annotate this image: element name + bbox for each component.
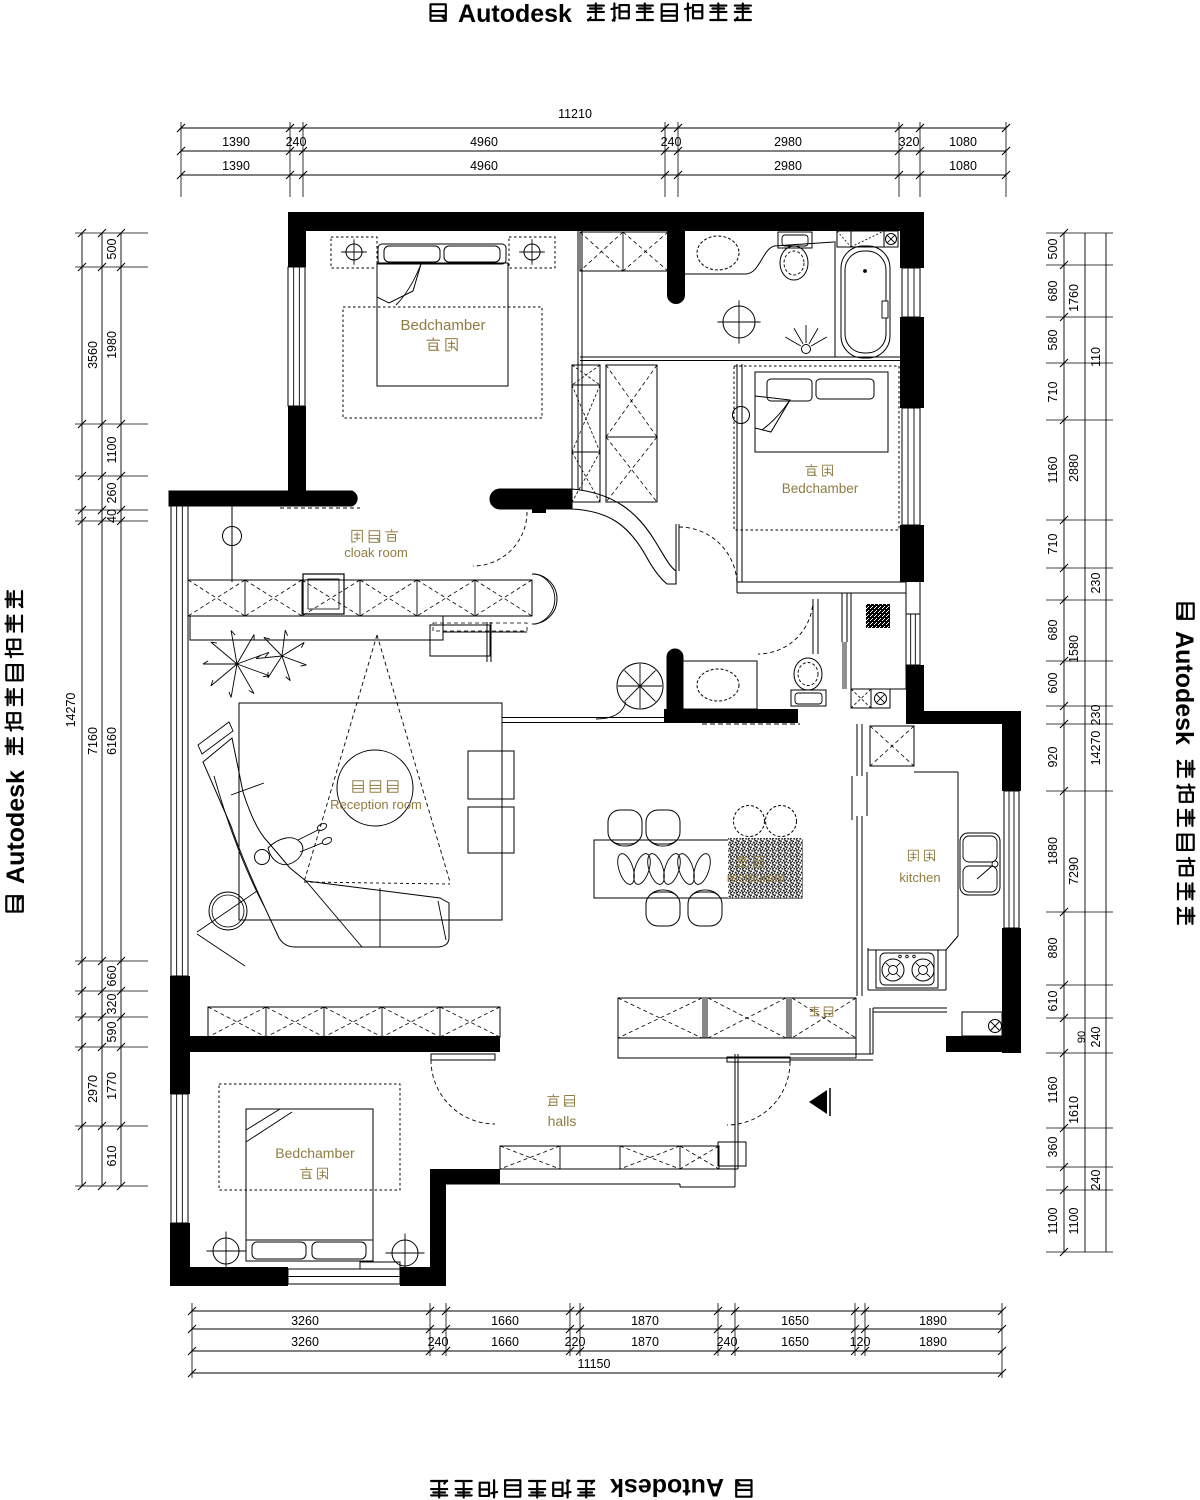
svg-text:3260: 3260 bbox=[291, 1314, 319, 1328]
svg-text:40: 40 bbox=[105, 509, 119, 523]
svg-text:Autodesk: Autodesk bbox=[1170, 631, 1198, 745]
svg-text:3560: 3560 bbox=[86, 341, 100, 369]
svg-text:1390: 1390 bbox=[222, 135, 250, 149]
svg-text:660: 660 bbox=[105, 966, 119, 987]
svg-text:2880: 2880 bbox=[1067, 454, 1081, 482]
svg-text:kitchen: kitchen bbox=[899, 870, 940, 885]
svg-text:1080: 1080 bbox=[949, 159, 977, 173]
svg-text:500: 500 bbox=[105, 239, 119, 260]
svg-text:240: 240 bbox=[1089, 1027, 1103, 1048]
svg-text:240: 240 bbox=[661, 135, 682, 149]
svg-text:7160: 7160 bbox=[86, 727, 100, 755]
svg-text:4960: 4960 bbox=[470, 159, 498, 173]
svg-text:1100: 1100 bbox=[1046, 1208, 1060, 1235]
svg-text:Autodesk: Autodesk bbox=[610, 1473, 724, 1500]
svg-text:1660: 1660 bbox=[491, 1335, 519, 1349]
svg-text:1870: 1870 bbox=[631, 1335, 659, 1349]
svg-text:500: 500 bbox=[1046, 239, 1060, 260]
svg-text:240: 240 bbox=[1089, 1170, 1103, 1191]
svg-text:halls: halls bbox=[548, 1113, 577, 1129]
svg-text:260: 260 bbox=[105, 483, 119, 504]
svg-text:Reception room: Reception room bbox=[330, 797, 422, 812]
svg-text:1100: 1100 bbox=[1067, 1208, 1081, 1235]
svg-text:230: 230 bbox=[1089, 705, 1103, 726]
svg-text:580: 580 bbox=[1046, 330, 1060, 351]
svg-text:220: 220 bbox=[565, 1335, 586, 1349]
svg-text:110: 110 bbox=[1089, 347, 1103, 367]
svg-text:14270: 14270 bbox=[1089, 731, 1103, 766]
svg-text:240: 240 bbox=[717, 1335, 738, 1349]
svg-text:1760: 1760 bbox=[1067, 284, 1081, 312]
svg-text:11150: 11150 bbox=[578, 1357, 611, 1371]
svg-text:680: 680 bbox=[1046, 620, 1060, 641]
svg-text:360: 360 bbox=[1046, 1137, 1060, 1158]
svg-text:1160: 1160 bbox=[1046, 457, 1060, 484]
svg-text:710: 710 bbox=[1046, 382, 1060, 403]
svg-text:3260: 3260 bbox=[291, 1335, 319, 1349]
svg-text:Autodesk: Autodesk bbox=[458, 0, 572, 28]
svg-text:cloak room: cloak room bbox=[344, 545, 408, 560]
svg-text:320: 320 bbox=[899, 135, 920, 149]
svg-text:6160: 6160 bbox=[105, 727, 119, 755]
svg-text:restaurant: restaurant bbox=[727, 870, 786, 885]
svg-text:1980: 1980 bbox=[105, 331, 119, 359]
svg-text:11210: 11210 bbox=[558, 107, 592, 121]
svg-text:1100: 1100 bbox=[105, 437, 119, 464]
svg-text:1650: 1650 bbox=[781, 1314, 809, 1328]
svg-text:Bedchamber: Bedchamber bbox=[275, 1145, 355, 1161]
svg-text:90: 90 bbox=[1076, 1031, 1088, 1043]
svg-text:1770: 1770 bbox=[105, 1072, 119, 1100]
svg-text:120: 120 bbox=[850, 1335, 871, 1349]
svg-text:240: 240 bbox=[286, 135, 307, 149]
svg-text:600: 600 bbox=[1046, 673, 1060, 694]
svg-text:1580: 1580 bbox=[1067, 635, 1081, 663]
svg-text:610: 610 bbox=[105, 1146, 119, 1167]
svg-text:1160: 1160 bbox=[1046, 1077, 1060, 1104]
svg-text:1080: 1080 bbox=[949, 135, 977, 149]
svg-text:1610: 1610 bbox=[1067, 1096, 1081, 1124]
svg-text:4960: 4960 bbox=[470, 135, 498, 149]
svg-text:1650: 1650 bbox=[781, 1335, 809, 1349]
svg-text:710: 710 bbox=[1046, 534, 1060, 555]
svg-text:590: 590 bbox=[105, 1022, 119, 1043]
svg-text:240: 240 bbox=[428, 1335, 449, 1349]
svg-text:1880: 1880 bbox=[1046, 837, 1060, 865]
svg-text:2970: 2970 bbox=[86, 1075, 100, 1103]
svg-text:Bedchamber: Bedchamber bbox=[782, 481, 859, 496]
svg-text:920: 920 bbox=[1046, 747, 1060, 768]
svg-text:320: 320 bbox=[105, 994, 119, 1015]
svg-text:1660: 1660 bbox=[491, 1314, 519, 1328]
svg-text:2980: 2980 bbox=[774, 159, 802, 173]
svg-text:610: 610 bbox=[1046, 991, 1060, 1012]
svg-text:1390: 1390 bbox=[222, 159, 250, 173]
svg-text:7290: 7290 bbox=[1067, 857, 1081, 885]
svg-text:230: 230 bbox=[1089, 573, 1103, 594]
svg-text:Bedchamber: Bedchamber bbox=[400, 317, 485, 334]
svg-text:14270: 14270 bbox=[64, 693, 78, 728]
svg-text:1890: 1890 bbox=[919, 1314, 947, 1328]
svg-text:880: 880 bbox=[1046, 938, 1060, 959]
svg-text:1890: 1890 bbox=[919, 1335, 947, 1349]
svg-text:Autodesk: Autodesk bbox=[2, 770, 30, 884]
svg-text:1870: 1870 bbox=[631, 1314, 659, 1328]
svg-text:680: 680 bbox=[1046, 281, 1060, 302]
svg-text:2980: 2980 bbox=[774, 135, 802, 149]
